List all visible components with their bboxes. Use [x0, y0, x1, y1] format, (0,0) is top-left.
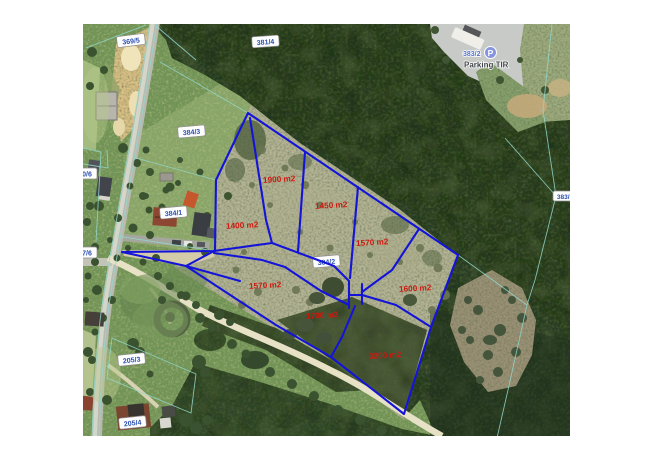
svg-text:1400 m2: 1400 m2 [226, 220, 259, 231]
svg-text:1570 m2: 1570 m2 [249, 280, 282, 291]
svg-text:1570 m2: 1570 m2 [356, 237, 389, 248]
svg-text:Parking TIR: Parking TIR [464, 61, 509, 70]
svg-text:7/6: 7/6 [82, 251, 92, 258]
svg-text:1900 m2: 1900 m2 [263, 174, 296, 185]
svg-text:1600 m2: 1600 m2 [399, 283, 432, 294]
svg-text:P: P [488, 48, 494, 58]
svg-text:3200 m2: 3200 m2 [369, 350, 402, 361]
svg-text:381/4: 381/4 [257, 39, 275, 47]
svg-text:1700 m2: 1700 m2 [306, 310, 339, 321]
svg-text:1450 m2: 1450 m2 [315, 200, 348, 211]
svg-text:383/2: 383/2 [463, 51, 481, 58]
svg-text:0/6: 0/6 [82, 172, 92, 179]
